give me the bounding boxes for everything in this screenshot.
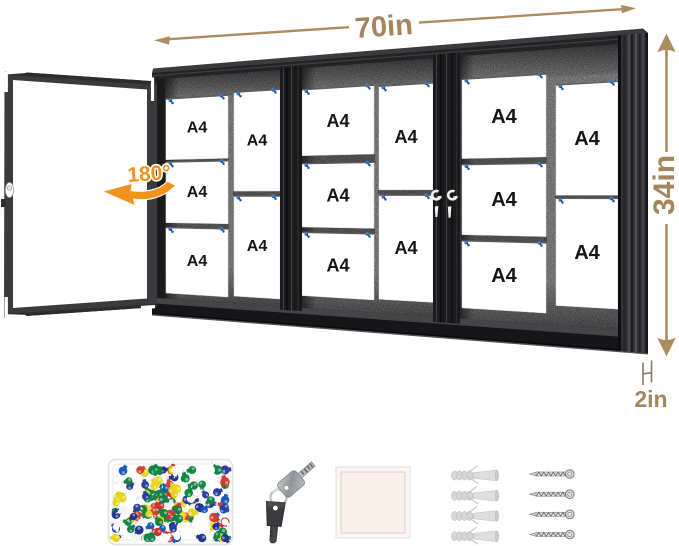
svg-text:A4: A4 (247, 132, 268, 149)
svg-text:A4: A4 (574, 128, 600, 150)
svg-text:70in: 70in (354, 9, 414, 45)
svg-text:34in: 34in (648, 155, 679, 215)
svg-text:A4: A4 (326, 255, 349, 275)
svg-text:A4: A4 (491, 189, 517, 211)
svg-text:A4: A4 (574, 242, 600, 264)
svg-text:2in: 2in (634, 386, 667, 412)
svg-text:A4: A4 (394, 127, 417, 147)
svg-text:A4: A4 (326, 185, 349, 205)
svg-text:A4: A4 (394, 238, 417, 258)
svg-text:A4: A4 (326, 111, 349, 131)
svg-text:A4: A4 (491, 106, 517, 128)
svg-text:A4: A4 (187, 253, 208, 270)
svg-text:A4: A4 (491, 265, 517, 287)
svg-text:A4: A4 (187, 184, 208, 201)
svg-text:A4: A4 (247, 238, 268, 255)
svg-text:A4: A4 (187, 120, 208, 137)
